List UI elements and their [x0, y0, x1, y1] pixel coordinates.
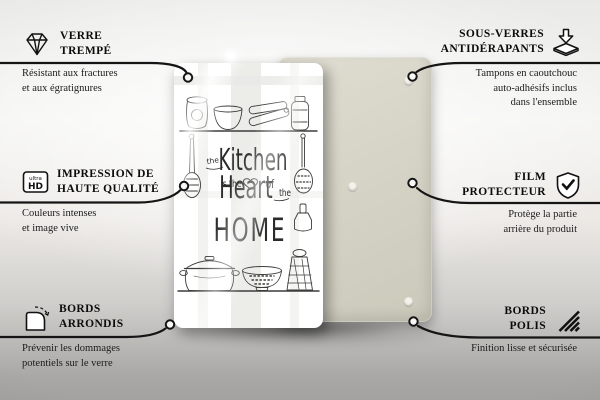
title-line: BORDS — [504, 304, 546, 319]
callout-title: IMPRESSION DE HAUTE QUALITÉ — [57, 167, 159, 197]
diamond-icon — [22, 31, 52, 57]
title-line: PROTECTEUR — [462, 185, 546, 200]
callout-rounded-edges: BORDS ARRONDIS — [22, 302, 124, 332]
desc-line: Résistant aux fractures — [22, 67, 118, 82]
callout-polished-edges-desc: Finition lisse et sécurisée — [471, 342, 577, 357]
title-line: BORDS — [59, 302, 124, 317]
sparkle-highlight — [228, 53, 234, 59]
title-line: ANTIDÉRAPANTS — [441, 42, 544, 57]
product-feature-infographic: the Kitchen is the of Heart the — [0, 0, 600, 400]
rounded-corner-icon — [22, 304, 51, 331]
title-line: ARRONDIS — [59, 317, 124, 332]
callout-print-quality: ultra HD IMPRESSION DE HAUTE QUALITÉ — [22, 167, 159, 197]
desc-line: Prévenir les dommages — [22, 342, 120, 357]
desc-line: et image vive — [22, 222, 96, 237]
callout-print-quality-desc: Couleurs intenses et image vive — [22, 207, 96, 236]
title-line: FILM — [462, 170, 546, 185]
title-line: POLIS — [504, 319, 546, 334]
desc-line: et aux égratignures — [22, 82, 118, 97]
non-slip-pads-icon — [552, 27, 580, 57]
callout-title: FILM PROTECTEUR — [462, 170, 546, 200]
kitchen-print-illustration: the Kitchen is the of Heart the — [174, 63, 323, 328]
callout-non-slip-pads: SOUS-VERRES ANTIDÉRAPANTS — [441, 27, 580, 57]
quote-home: HOME — [214, 213, 287, 249]
title-line: TREMPÉ — [60, 44, 112, 59]
polished-edge-icon — [554, 306, 582, 333]
rubber-pad — [348, 182, 357, 191]
callout-rounded-edges-desc: Prévenir les dommages potentiels sur le … — [22, 342, 120, 371]
desc-line: arrière du produit — [504, 223, 577, 238]
desc-line: Couleurs intenses — [22, 207, 96, 222]
callout-protective-film-desc: Protège la partie arrière du produit — [504, 208, 577, 237]
callout-title: VERRE TREMPÉ — [60, 29, 112, 59]
desc-line: Tampons en caoutchouc — [476, 67, 577, 82]
callout-polished-edges: BORDS POLIS — [504, 304, 582, 334]
desc-line: dans l'ensemble — [476, 96, 577, 111]
desc-line: auto-adhésifs inclus — [476, 82, 577, 97]
callout-title: BORDS POLIS — [504, 304, 546, 334]
quote-heart: Heart — [219, 170, 272, 206]
rubber-pad — [404, 297, 413, 306]
callout-non-slip-pads-desc: Tampons en caoutchouc auto-adhésifs incl… — [476, 67, 577, 111]
title-line: HAUTE QUALITÉ — [57, 182, 159, 197]
title-line: SOUS-VERRES — [441, 27, 544, 42]
callout-title: BORDS ARRONDIS — [59, 302, 124, 332]
callout-protective-film: FILM PROTECTEUR — [462, 170, 582, 200]
callout-tempered-glass: VERRE TREMPÉ — [22, 29, 112, 59]
desc-line: Protège la partie — [504, 208, 577, 223]
hd-label: HD — [28, 182, 43, 192]
shield-check-icon — [554, 171, 582, 200]
product-front-board: the Kitchen is the of Heart the — [174, 63, 323, 328]
board-quote: the Kitchen is the of Heart the — [206, 142, 291, 249]
callout-title: SOUS-VERRES ANTIDÉRAPANTS — [441, 27, 544, 57]
rubber-pad — [404, 76, 413, 85]
desc-line: potentiels sur le verre — [22, 357, 120, 372]
ultra-hd-icon: ultra HD — [22, 170, 49, 194]
title-line: VERRE — [60, 29, 112, 44]
quote-the-2: the — [279, 187, 291, 198]
title-line: IMPRESSION DE — [57, 167, 159, 182]
callout-tempered-glass-desc: Résistant aux fractures et aux égratignu… — [22, 67, 118, 96]
desc-line: Finition lisse et sécurisée — [471, 342, 577, 357]
